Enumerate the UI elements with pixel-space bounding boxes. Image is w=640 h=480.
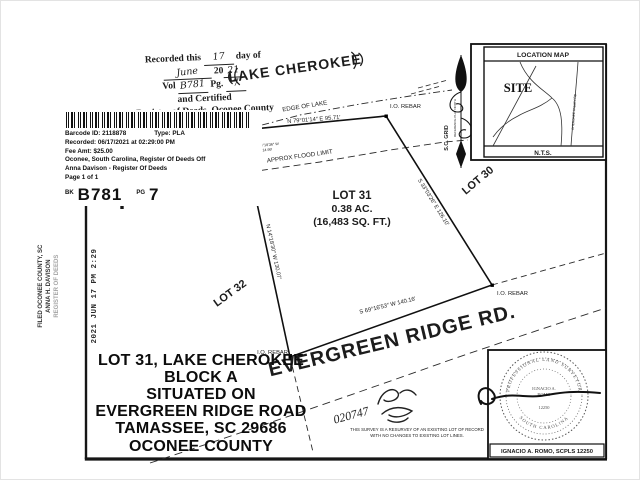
lake-edge-tick <box>418 80 448 88</box>
barcode-recorded: Recorded: 06/17/2021 at 02:29:00 PM <box>65 139 259 148</box>
book-page-line: BK B781 PG 7 <box>65 186 259 203</box>
bearing-east: S 33°03'26″ E 126.10′ <box>416 178 450 227</box>
filed-stamp-line1: FILED OCONEE COUNTY, SC <box>37 228 45 344</box>
pg-value: 7 <box>149 186 159 203</box>
recording-stamp-text: Pg. <box>210 79 223 90</box>
plat-title-block: LOT 31, LAKE CHEROKEE BLOCK A SITUATED O… <box>84 352 318 455</box>
barcode-label: Barcode ID: 2118878 Type: PLA Recorded: … <box>62 110 262 206</box>
filed-stamp-line2: ANNA H. DAVISON <box>45 228 53 344</box>
handwritten-year: 21 <box>227 64 240 78</box>
nts-label: N.T.S. <box>534 150 552 157</box>
recording-stamp-text: day of <box>236 50 261 61</box>
handwritten-pg: 7 <box>232 77 239 90</box>
title-line-county: OCONEE COUNTY <box>84 438 318 455</box>
title-line-road: EVERGREEN RIDGE ROAD <box>84 403 318 420</box>
barcode-id: Barcode ID: 2118878 <box>65 130 126 139</box>
location-map-frame <box>484 47 603 157</box>
bearing-jog-line2: 14.99′ <box>262 148 273 153</box>
recording-stamp-text: Recorded this <box>145 53 202 65</box>
filed-stamp-line3: REGISTER OF DEEDS <box>53 228 61 344</box>
survey-note-line2: WITH NO CHANGES TO EXISTING LOT LINES. <box>370 433 464 438</box>
corner-marker-se <box>491 284 494 287</box>
lot31-area-acres: 0.38 AC. <box>331 203 372 215</box>
location-map-title: LOCATION MAP <box>517 52 569 59</box>
title-line-lot: LOT 31, LAKE CHEROKEE <box>84 352 318 369</box>
barcode-page: Page 1 of 1 <box>65 174 259 183</box>
surveyor-name-label: IGNACIO A. ROMO, SCPLS 12250 <box>501 449 593 455</box>
date-time-stamp: 2021 JUN 17 PM 2:29 <box>91 242 99 350</box>
bk-label: BK <box>65 189 74 197</box>
barcode-fee: Fee Amt: $25.00 <box>65 148 259 157</box>
plat-scan-page: LAKE CHEROKEE EDGE OF LAKE APPROX FLOOD … <box>0 0 640 480</box>
north-arrow-head <box>455 55 466 92</box>
barcode-type: Type: PLA <box>154 130 185 139</box>
lot31-label-group: LOT 31 0.38 AC. (16,483 SQ. FT.) <box>313 190 391 228</box>
pg-label: PG <box>136 189 145 197</box>
barcode-row-id: Barcode ID: 2118878 Type: PLA <box>65 130 259 139</box>
reference-plat-north-label: REFERENCE PLAT NORTH <box>453 99 457 137</box>
barcode-registrar: Anna Davison - Register Of Deeds <box>65 165 259 174</box>
pg-blank: 7 <box>225 77 246 91</box>
vol-blank: B781 <box>178 79 209 94</box>
lot-line-extension-right <box>492 253 606 285</box>
lot31-area-sqft: (16,483 SQ. FT.) <box>313 216 391 228</box>
handwritten-day: 17 <box>212 51 225 65</box>
handwritten-scribble <box>378 390 416 423</box>
recording-stamp-text: Vol <box>162 81 176 92</box>
bk-value: B781 <box>78 186 123 203</box>
location-map: LOCATION MAP SITE CHEROKEE VALLEY RD N.T… <box>471 44 606 160</box>
title-line-block: BLOCK A <box>84 369 318 386</box>
barcode-icon <box>66 112 250 128</box>
barcode-office: Oconee, South Carolina, Register Of Deed… <box>65 156 259 165</box>
filed-stamp: FILED OCONEE COUNTY, SC ANNA H. DAVISON … <box>37 228 61 344</box>
lot30-label: LOT 30 <box>460 164 496 197</box>
sc-grid-label: S.C. GRID <box>444 125 450 151</box>
rebar-label-ne: I.O. REBAR <box>390 104 421 110</box>
bearing-south: S 69°16'53″ W 140.16′ <box>359 296 417 315</box>
flood-limit-label: APPROX FLOOD LIMIT <box>266 148 333 164</box>
handwritten-number: 020747 <box>332 403 371 426</box>
survey-note-line1: THIS SURVEY IS A RESURVEY OF AN EXISTING… <box>350 427 484 432</box>
survey-note: THIS SURVEY IS A RESURVEY OF AN EXISTING… <box>350 427 484 438</box>
title-line-city: TAMASSEE, SC 29686 <box>84 420 318 437</box>
site-label: SITE <box>504 81 533 95</box>
seal-center-name1: IGNACIO A. <box>532 386 556 391</box>
lot31-name: LOT 31 <box>333 190 373 202</box>
lake-edge-tick <box>411 86 441 94</box>
seal-box: PROFESSIONAL LAND SURVEYOR SOUTH CAROLIN… <box>479 350 606 459</box>
seal-center-number: 12250 <box>539 405 551 410</box>
handwritten-vol: B781 <box>180 78 206 93</box>
recording-stamp-text: 20 <box>214 66 224 76</box>
year-blank: 21 <box>223 64 244 78</box>
day-blank: 17 <box>203 51 234 66</box>
handwritten-month: June <box>176 65 199 80</box>
title-line-situated: SITUATED ON <box>84 386 318 403</box>
lot32-label: LOT 32 <box>212 278 249 310</box>
rebar-label-se: I.O. REBAR <box>497 291 528 297</box>
corner-marker-ne <box>385 115 388 118</box>
north-arrow-tail <box>456 140 466 168</box>
